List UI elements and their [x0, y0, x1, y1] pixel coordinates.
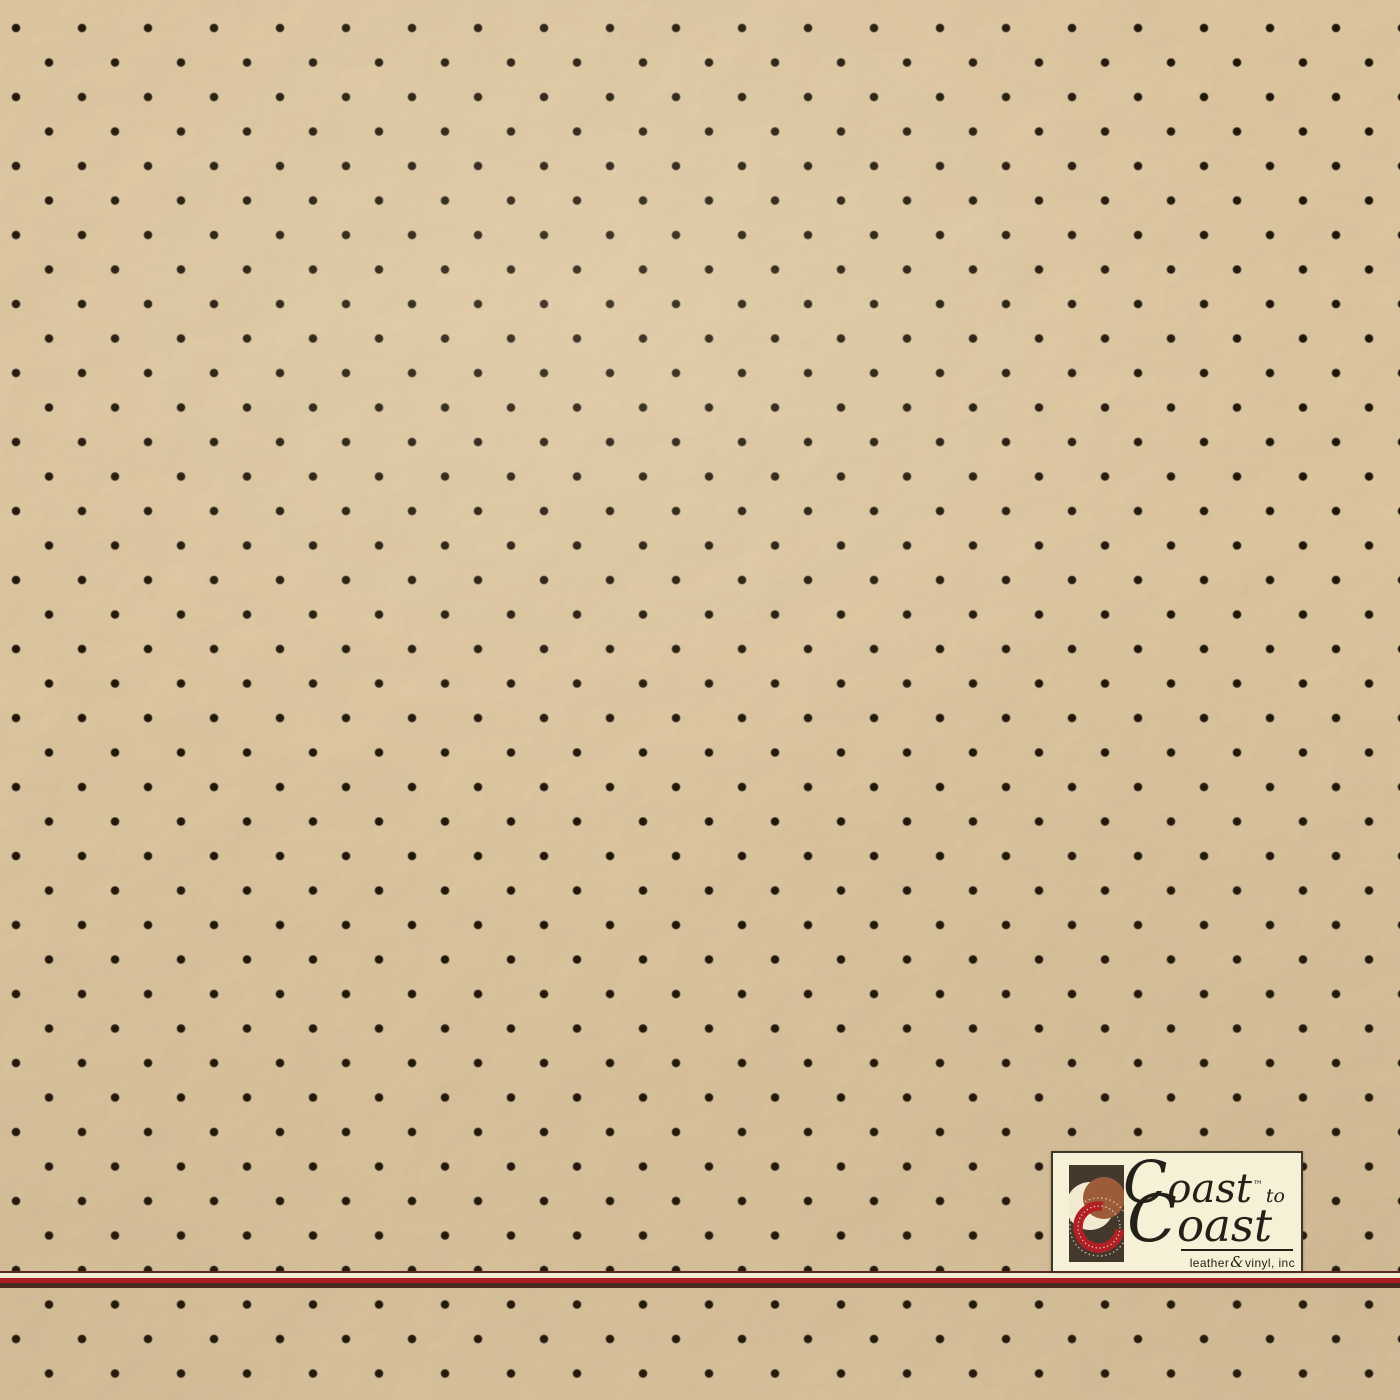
coast-to-coast-logo-icon — [1069, 1165, 1124, 1262]
tagline-leather: leather — [1190, 1256, 1230, 1270]
logo-plaque: Coast™to Coast leather&vinyl, inc — [1051, 1151, 1303, 1271]
logo-divider-rule — [1181, 1249, 1293, 1251]
accent-stripe — [0, 1271, 1400, 1288]
tagline-ampersand: & — [1230, 1253, 1244, 1271]
brand-line-2: Coast — [1127, 1187, 1272, 1252]
brand-word-coast-2: Coast — [1127, 1187, 1272, 1252]
leather-swatch-photo: Coast™to Coast leather&vinyl, inc — [0, 0, 1400, 1400]
logo-tagline: leather&vinyl, inc — [1190, 1253, 1295, 1271]
tagline-vinyl-inc: vinyl, inc — [1245, 1256, 1295, 1270]
